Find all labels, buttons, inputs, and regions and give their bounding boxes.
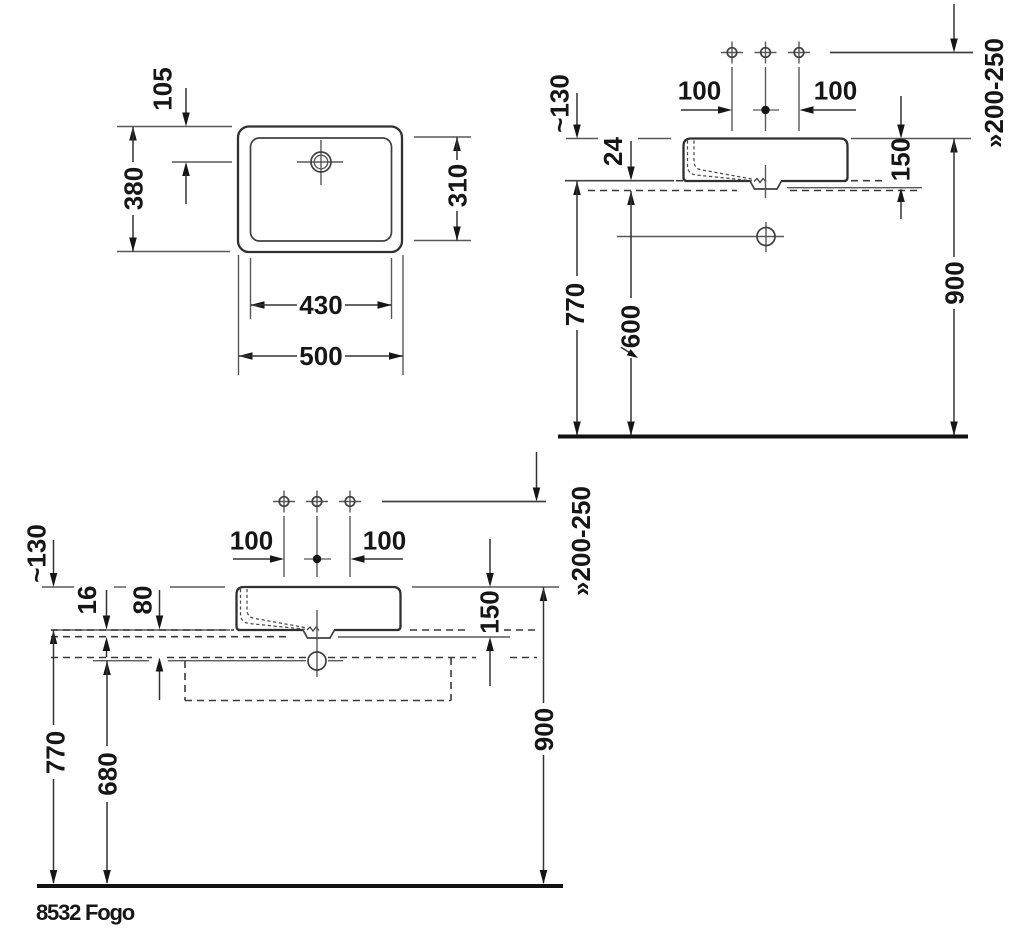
svg-text:100: 100 (363, 526, 406, 556)
svg-text:430: 430 (299, 290, 342, 320)
svg-text:16: 16 (72, 586, 102, 615)
svg-text:150: 150 (885, 138, 915, 181)
svg-text:600: 600 (615, 305, 645, 348)
svg-text:8532 Fogo: 8532 Fogo (36, 900, 135, 925)
svg-text:380: 380 (118, 167, 148, 210)
svg-text:~130: ~130 (21, 524, 51, 583)
svg-text:»200-250: »200-250 (566, 486, 596, 596)
svg-text:100: 100 (678, 76, 721, 106)
svg-text:100: 100 (230, 526, 273, 556)
svg-text:900: 900 (529, 708, 559, 751)
svg-text:500: 500 (299, 341, 342, 371)
svg-text:24: 24 (598, 137, 628, 166)
svg-text:100: 100 (814, 76, 857, 106)
svg-text:80: 80 (127, 586, 157, 615)
svg-text:770: 770 (40, 731, 70, 774)
svg-text:~130: ~130 (544, 74, 574, 133)
svg-text:150: 150 (474, 590, 504, 633)
svg-text:680: 680 (92, 752, 122, 795)
svg-text:900: 900 (939, 261, 969, 304)
svg-text:310: 310 (442, 164, 472, 207)
svg-text:105: 105 (147, 67, 177, 110)
svg-text:770: 770 (560, 283, 590, 326)
svg-text:»200-250: »200-250 (979, 38, 1009, 148)
